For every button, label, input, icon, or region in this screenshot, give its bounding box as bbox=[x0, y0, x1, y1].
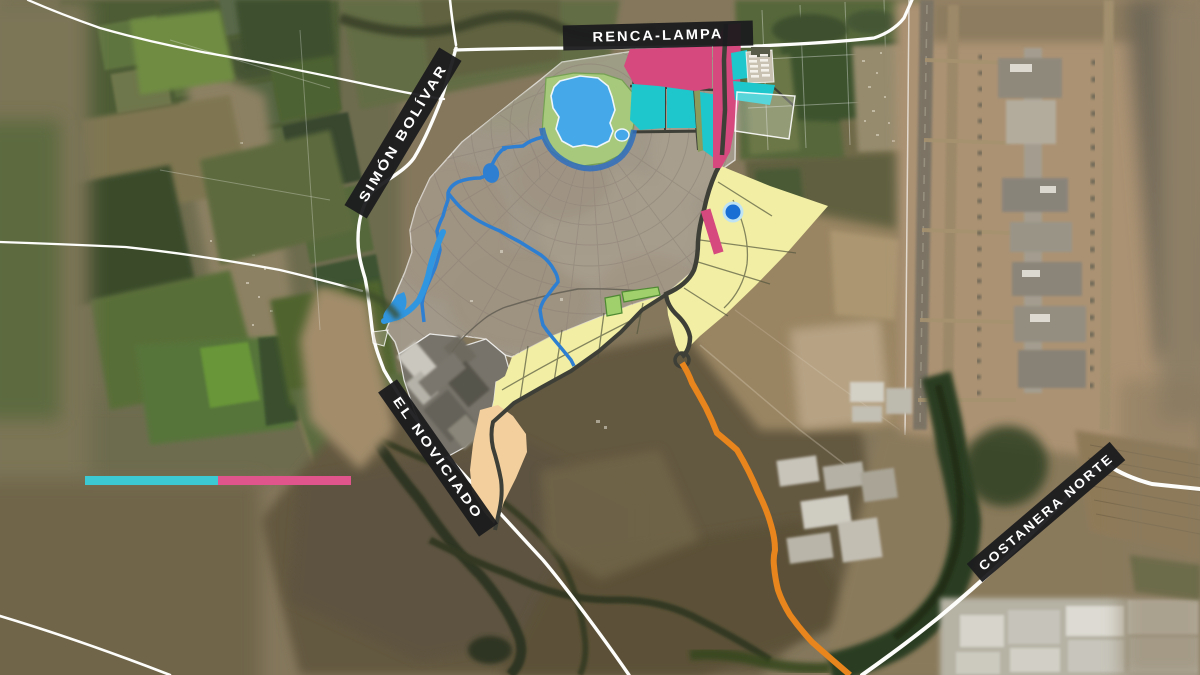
svg-text:RENCA-LAMPA: RENCA-LAMPA bbox=[592, 25, 723, 44]
